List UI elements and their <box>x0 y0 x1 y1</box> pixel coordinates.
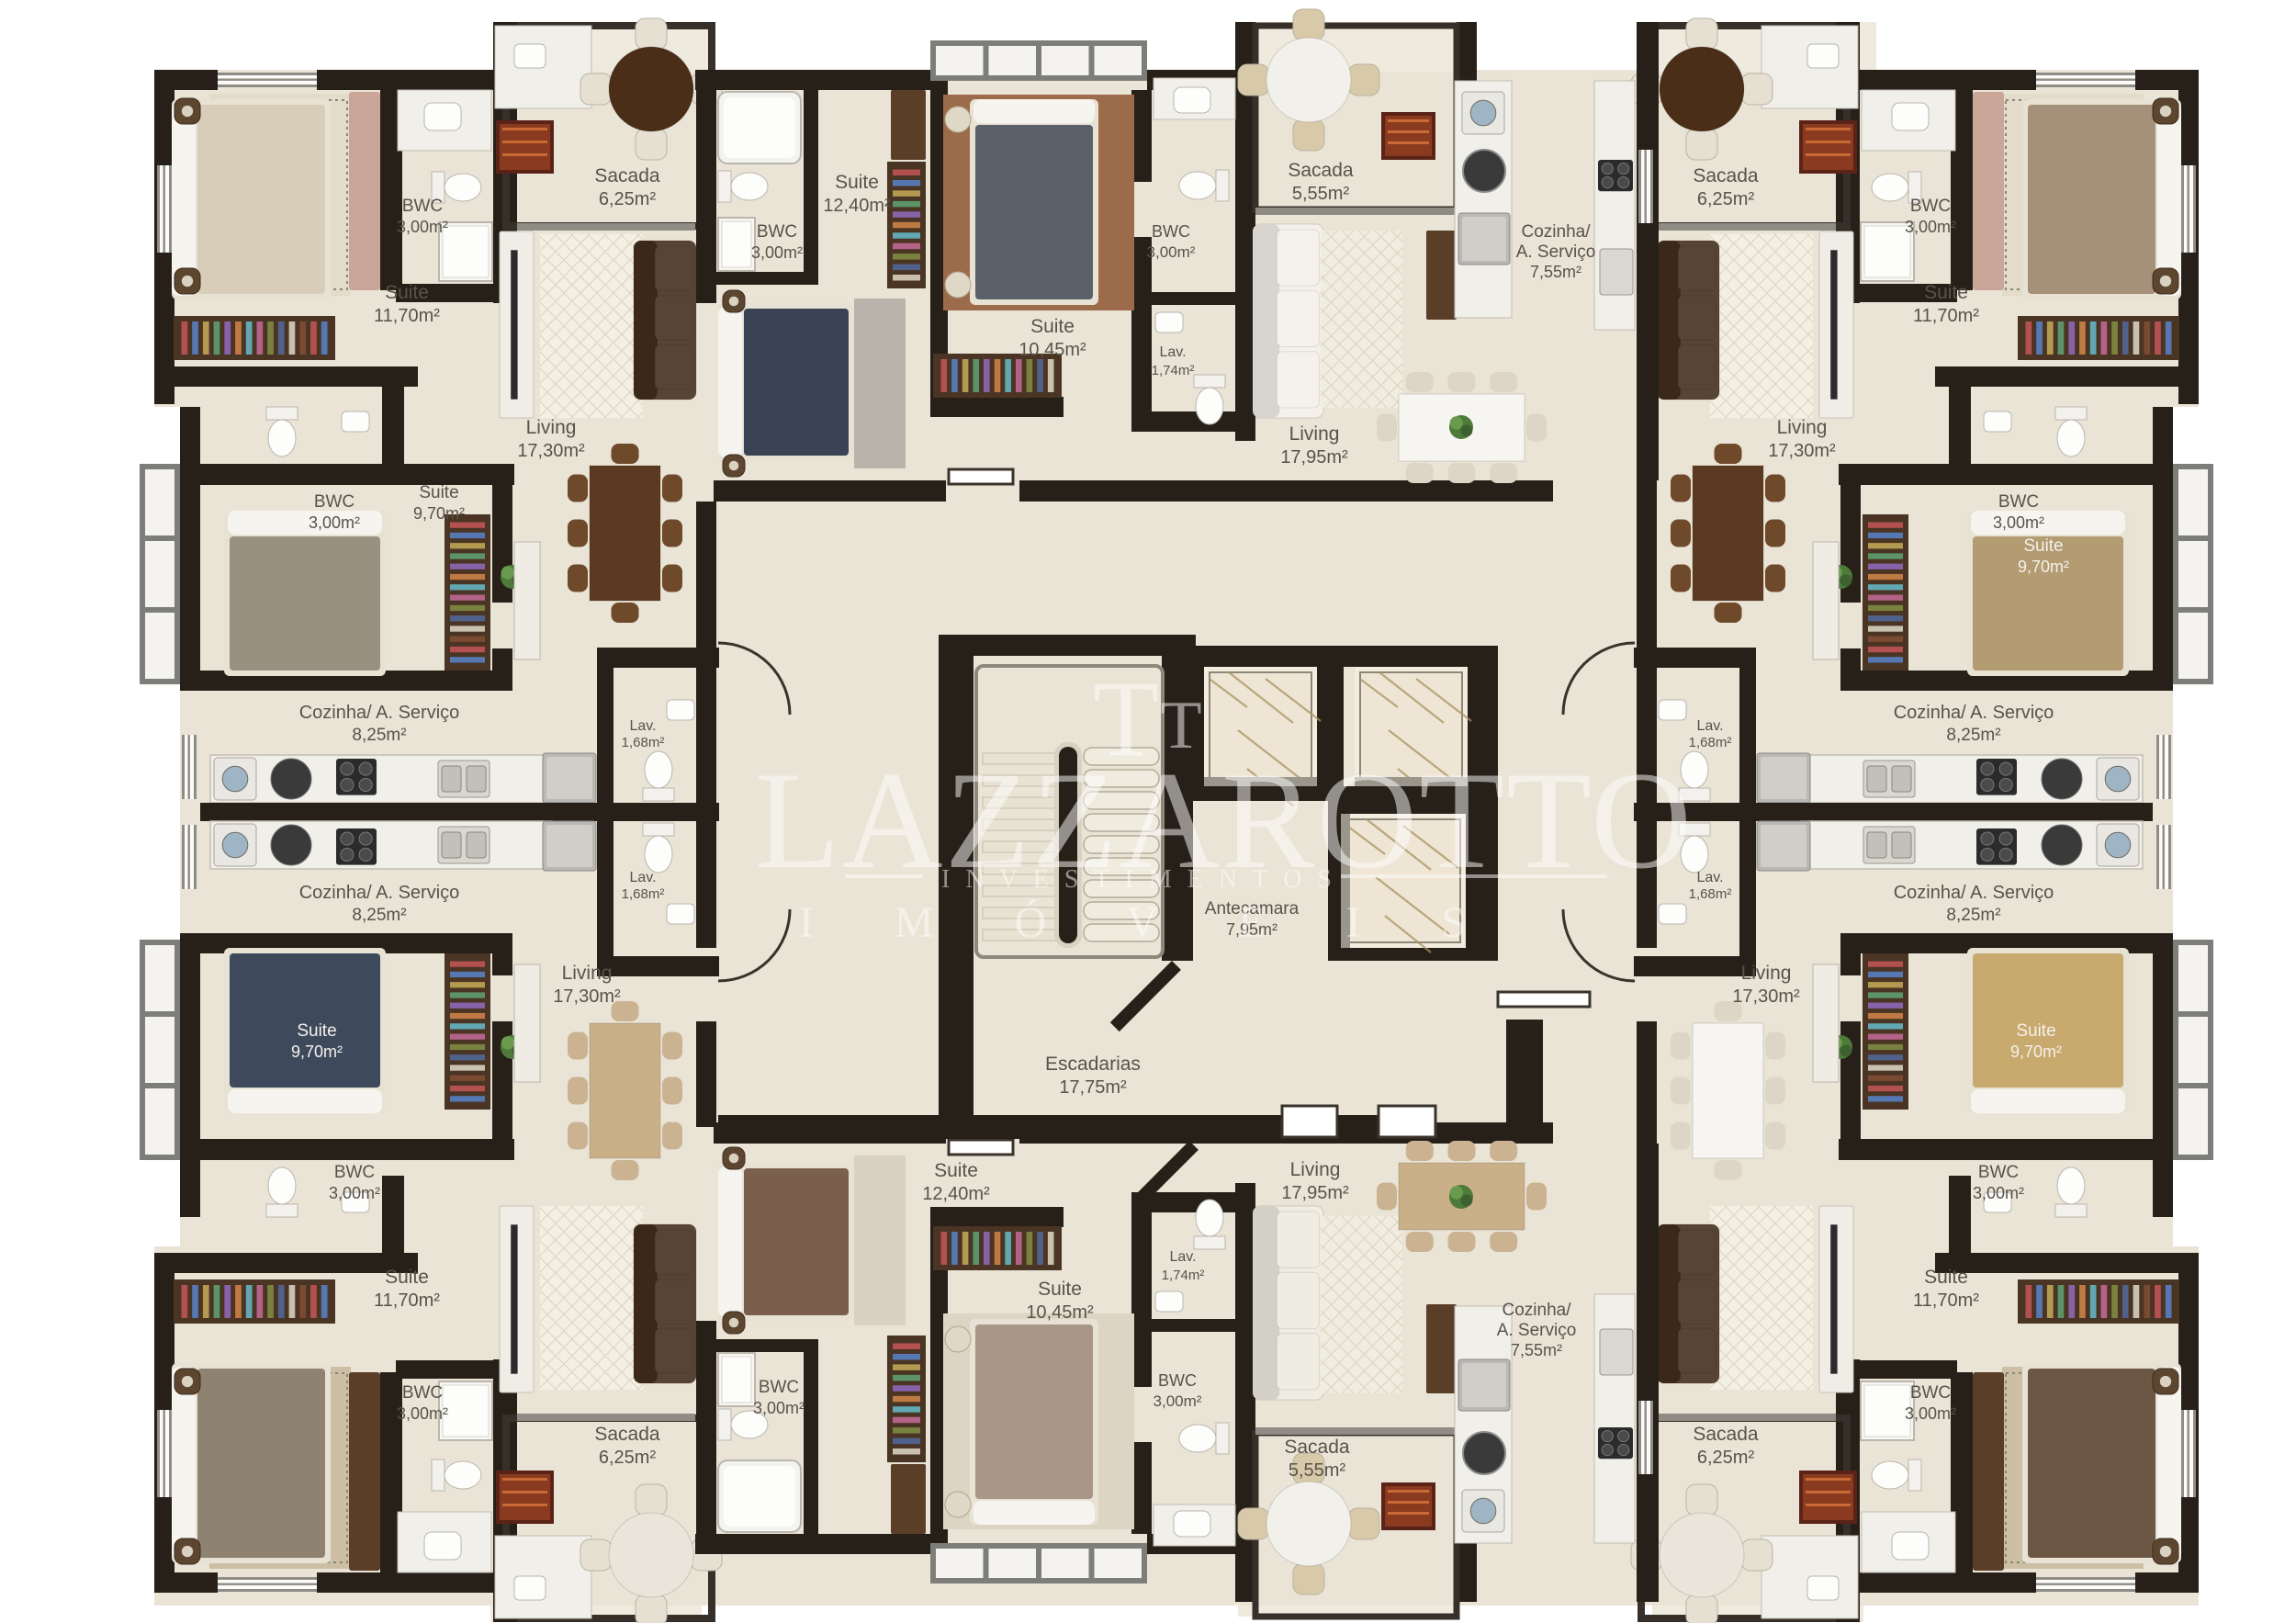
svg-text:5,55m²: 5,55m² <box>1289 1460 1346 1481</box>
svg-text:10,45m²: 10,45m² <box>1019 340 1086 360</box>
svg-text:A. Serviço: A. Serviço <box>1497 1321 1577 1340</box>
svg-text:BWC: BWC <box>1998 492 2039 512</box>
svg-text:BWC: BWC <box>759 1378 799 1397</box>
svg-text:Suite: Suite <box>385 1267 429 1288</box>
svg-text:Suite: Suite <box>934 1160 978 1181</box>
svg-text:Suite: Suite <box>1924 282 1968 303</box>
svg-text:I M Ó V E I S: I M Ó V E I S <box>799 897 1501 947</box>
svg-text:Living: Living <box>1289 423 1340 445</box>
svg-text:17,75m²: 17,75m² <box>1059 1077 1127 1098</box>
svg-text:12,40m²: 12,40m² <box>823 196 891 216</box>
svg-text:Suite: Suite <box>1038 1279 1082 1300</box>
svg-text:10,45m²: 10,45m² <box>1026 1302 1094 1323</box>
svg-text:I N V E S T I M E N T O S: I N V E S T I M E N T O S <box>941 865 1336 894</box>
svg-text:Sacada: Sacada <box>1693 1424 1759 1445</box>
svg-text:BWC: BWC <box>1910 1383 1951 1403</box>
svg-text:BWC: BWC <box>402 1383 443 1403</box>
svg-text:17,30m²: 17,30m² <box>1732 986 1800 1007</box>
svg-text:Lav.: Lav. <box>1159 344 1186 360</box>
svg-text:1,74m²: 1,74m² <box>1152 363 1195 378</box>
svg-text:BWC: BWC <box>314 492 355 512</box>
svg-text:1,68m²: 1,68m² <box>1689 886 1732 902</box>
svg-text:Suite: Suite <box>297 1021 336 1041</box>
svg-text:Escadarias: Escadarias <box>1045 1054 1141 1075</box>
svg-text:A. Serviço: A. Serviço <box>1516 242 1596 262</box>
svg-text:8,25m²: 8,25m² <box>1946 726 2000 745</box>
svg-text:3,00m²: 3,00m² <box>397 218 448 236</box>
svg-text:BWC: BWC <box>1158 1371 1197 1390</box>
svg-text:12,40m²: 12,40m² <box>922 1184 990 1204</box>
svg-text:8,25m²: 8,25m² <box>352 726 406 745</box>
svg-text:3,00m²: 3,00m² <box>751 243 803 262</box>
svg-text:1,68m²: 1,68m² <box>1689 735 1732 750</box>
svg-text:3,00m²: 3,00m² <box>1905 1404 1956 1423</box>
svg-text:1,74m²: 1,74m² <box>1162 1268 1205 1283</box>
svg-text:11,70m²: 11,70m² <box>374 306 440 326</box>
svg-text:3,00m²: 3,00m² <box>309 513 360 532</box>
svg-text:Suite: Suite <box>1924 1267 1968 1288</box>
svg-text:Sacada: Sacada <box>1288 160 1354 181</box>
svg-text:Cozinha/ A. Serviço: Cozinha/ A. Serviço <box>299 703 460 723</box>
svg-text:Lav.: Lav. <box>1696 870 1723 885</box>
svg-text:BWC: BWC <box>1978 1163 2019 1182</box>
svg-text:3,00m²: 3,00m² <box>1973 1184 2024 1202</box>
svg-text:8,25m²: 8,25m² <box>1946 906 2000 925</box>
svg-text:11,70m²: 11,70m² <box>374 1291 440 1311</box>
svg-text:Suite: Suite <box>1030 316 1075 337</box>
svg-text:9,70m²: 9,70m² <box>2010 1043 2062 1061</box>
svg-text:11,70m²: 11,70m² <box>1913 1291 1979 1311</box>
svg-text:6,25m²: 6,25m² <box>1697 189 1755 209</box>
svg-text:3,00m²: 3,00m² <box>1905 218 1956 236</box>
svg-text:1,68m²: 1,68m² <box>622 886 665 902</box>
svg-text:8,25m²: 8,25m² <box>352 906 406 925</box>
svg-text:3,00m²: 3,00m² <box>329 1184 380 1202</box>
svg-text:17,30m²: 17,30m² <box>1768 441 1836 461</box>
svg-text:5,55m²: 5,55m² <box>1292 184 1350 204</box>
svg-text:Suite: Suite <box>385 282 429 303</box>
svg-text:Lav.: Lav. <box>1169 1249 1196 1265</box>
svg-text:3,00m²: 3,00m² <box>1154 1392 1202 1410</box>
svg-text:17,30m²: 17,30m² <box>517 441 585 461</box>
svg-text:9,70m²: 9,70m² <box>291 1043 343 1061</box>
svg-text:BWC: BWC <box>334 1163 375 1182</box>
svg-text:3,00m²: 3,00m² <box>753 1399 805 1417</box>
svg-text:BWC: BWC <box>1152 222 1190 241</box>
svg-text:BWC: BWC <box>1910 197 1951 216</box>
svg-text:17,95m²: 17,95m² <box>1281 1183 1349 1203</box>
svg-text:6,25m²: 6,25m² <box>599 189 657 209</box>
svg-text:6,25m²: 6,25m² <box>1697 1448 1755 1468</box>
svg-text:Living: Living <box>1777 417 1828 438</box>
svg-text:Cozinha/ A. Serviço: Cozinha/ A. Serviço <box>299 883 460 903</box>
svg-text:3,00m²: 3,00m² <box>1993 513 2044 532</box>
svg-text:Sacada: Sacada <box>1693 165 1759 186</box>
svg-text:Living: Living <box>1290 1159 1341 1180</box>
svg-text:Living: Living <box>526 417 577 438</box>
svg-text:Suite: Suite <box>835 172 879 193</box>
svg-text:Lav.: Lav. <box>1696 718 1723 734</box>
svg-text:Suite: Suite <box>2023 536 2063 556</box>
svg-text:7,55m²: 7,55m² <box>1511 1341 1562 1359</box>
svg-text:Sacada: Sacada <box>594 165 660 186</box>
svg-text:11,70m²: 11,70m² <box>1913 306 1979 326</box>
svg-text:3,00m²: 3,00m² <box>397 1404 448 1423</box>
svg-text:7,55m²: 7,55m² <box>1530 263 1581 281</box>
svg-text:Lav.: Lav. <box>629 870 656 885</box>
svg-text:1,68m²: 1,68m² <box>622 735 665 750</box>
svg-text:Sacada: Sacada <box>1284 1437 1350 1458</box>
svg-text:Cozinha/ A. Serviço: Cozinha/ A. Serviço <box>1894 883 2054 903</box>
svg-text:17,95m²: 17,95m² <box>1280 447 1348 468</box>
svg-text:BWC: BWC <box>757 222 797 242</box>
svg-text:6,25m²: 6,25m² <box>599 1448 657 1468</box>
svg-text:Sacada: Sacada <box>594 1424 660 1445</box>
svg-text:Cozinha/: Cozinha/ <box>1522 222 1592 242</box>
svg-text:BWC: BWC <box>402 197 443 216</box>
svg-text:Living: Living <box>1741 963 1792 984</box>
svg-text:17,30m²: 17,30m² <box>553 986 621 1007</box>
svg-text:9,70m²: 9,70m² <box>413 504 465 523</box>
svg-text:Suite: Suite <box>419 483 458 502</box>
svg-text:9,70m²: 9,70m² <box>2018 558 2069 576</box>
svg-text:Living: Living <box>562 963 613 984</box>
svg-text:Cozinha/: Cozinha/ <box>1503 1301 1572 1320</box>
svg-text:Cozinha/ A. Serviço: Cozinha/ A. Serviço <box>1894 703 2054 723</box>
svg-text:Lav.: Lav. <box>629 718 656 734</box>
svg-text:Suite: Suite <box>2016 1021 2055 1041</box>
svg-text:3,00m²: 3,00m² <box>1147 243 1196 261</box>
